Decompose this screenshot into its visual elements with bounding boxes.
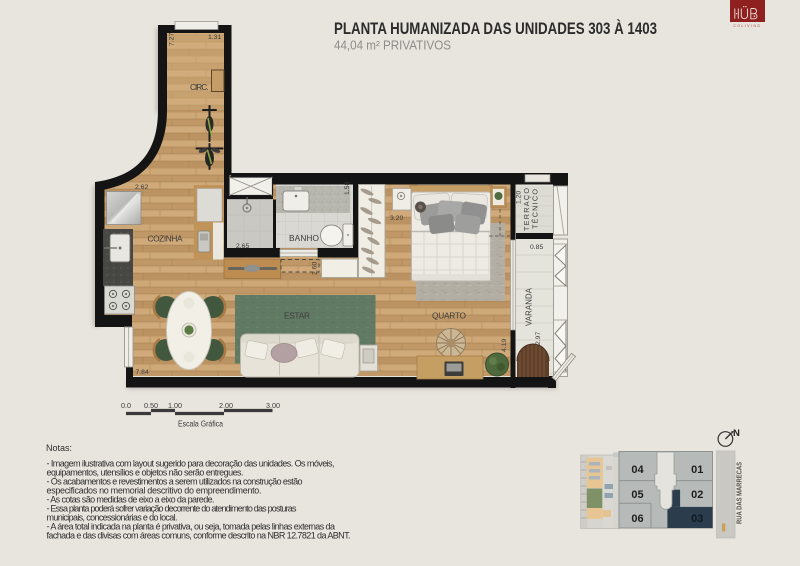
svg-text:4.19: 4.19 — [501, 339, 508, 352]
svg-text:ESTAR: ESTAR — [284, 311, 310, 321]
svg-text:2.62: 2.62 — [135, 184, 148, 191]
svg-text:05: 05 — [631, 489, 643, 501]
svg-text:VARANDA: VARANDA — [525, 287, 534, 326]
svg-text:0.85: 0.85 — [530, 244, 543, 251]
svg-text:COLIVING: COLIVING — [733, 24, 761, 28]
svg-text:44,04 m² PRIVATIVOS: 44,04 m² PRIVATIVOS — [334, 38, 451, 53]
svg-text:7.27: 7.27 — [169, 33, 176, 46]
svg-text:04: 04 — [631, 464, 644, 476]
svg-text:TÉCNICO: TÉCNICO — [531, 189, 540, 229]
svg-text:06: 06 — [631, 513, 643, 525]
svg-text:3.00: 3.00 — [266, 401, 280, 410]
svg-text:1.20: 1.20 — [516, 191, 523, 204]
svg-text:fachada e das divisas com área: fachada e das divisas com áreas comuns, … — [47, 531, 351, 541]
svg-text:7.84: 7.84 — [136, 369, 149, 376]
svg-text:01: 01 — [691, 464, 703, 476]
svg-text:PLANTA HUMANIZADA DAS UNIDADES: PLANTA HUMANIZADA DAS UNIDADES 303 À 140… — [334, 19, 657, 38]
svg-text:0.50: 0.50 — [144, 401, 158, 410]
svg-text:02: 02 — [691, 489, 703, 501]
svg-text:03: 03 — [691, 513, 703, 525]
svg-text:2.97: 2.97 — [535, 332, 542, 345]
svg-text:CIRC.: CIRC. — [190, 82, 209, 92]
svg-text:2.65: 2.65 — [236, 243, 249, 250]
svg-text:1.00: 1.00 — [168, 401, 182, 410]
svg-text:QUARTO: QUARTO — [432, 311, 467, 321]
svg-text:RUA DAS MARRECAS: RUA DAS MARRECAS — [737, 462, 744, 524]
svg-text:N: N — [733, 428, 740, 439]
svg-text:3.20: 3.20 — [390, 215, 403, 222]
svg-text:2.00: 2.00 — [219, 401, 233, 410]
svg-text:0.0: 0.0 — [121, 401, 131, 410]
svg-text:COZINHA: COZINHA — [148, 234, 183, 244]
svg-text:1.31: 1.31 — [208, 34, 221, 41]
svg-text:BANHO: BANHO — [289, 233, 320, 243]
svg-text:1.58: 1.58 — [344, 182, 351, 195]
svg-text:2.60: 2.60 — [312, 262, 319, 275]
svg-text:Notas:: Notas: — [46, 443, 72, 453]
svg-text:Escala Gráfica: Escala Gráfica — [178, 419, 223, 429]
